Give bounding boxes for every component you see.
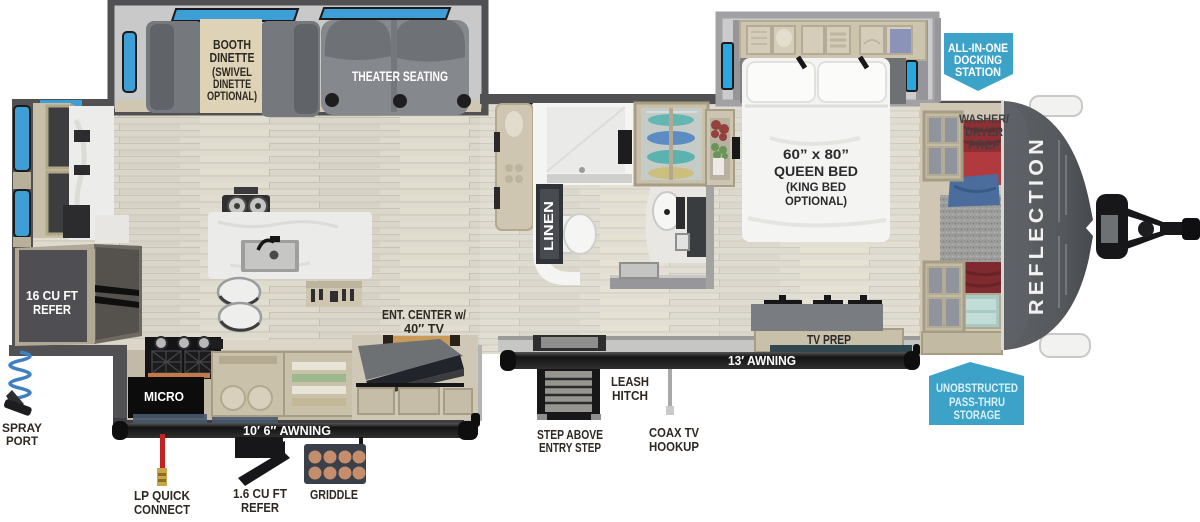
svg-text:LP QUICK: LP QUICK: [134, 488, 191, 503]
svg-text:STORAGE: STORAGE: [954, 408, 1001, 422]
svg-text:10′ 6″ AWNING: 10′ 6″ AWNING: [243, 423, 331, 438]
svg-text:REFER: REFER: [33, 302, 72, 317]
svg-text:PREP: PREP: [968, 138, 1000, 152]
svg-text:1.6 CU FT: 1.6 CU FT: [233, 486, 287, 501]
svg-text:THEATER SEATING: THEATER SEATING: [352, 68, 448, 84]
svg-text:STATION: STATION: [955, 65, 1001, 79]
svg-text:OPTIONAL): OPTIONAL): [785, 194, 847, 208]
svg-text:PORT: PORT: [6, 434, 39, 448]
svg-text:LINEN: LINEN: [541, 201, 556, 251]
svg-text:13′ AWNING: 13′ AWNING: [728, 353, 796, 368]
svg-text:DRYER: DRYER: [965, 125, 1003, 139]
svg-text:40″ TV: 40″ TV: [404, 321, 444, 336]
svg-text:WASHER/: WASHER/: [959, 112, 1010, 126]
svg-text:TV PREP: TV PREP: [807, 332, 851, 347]
svg-text:SPRAY: SPRAY: [2, 421, 42, 435]
svg-text:OPTIONAL): OPTIONAL): [207, 89, 257, 103]
svg-text:UNOBSTRUCTED: UNOBSTRUCTED: [936, 381, 1018, 395]
svg-text:REFLECTION: REFLECTION: [1026, 135, 1048, 315]
svg-text:ENT. CENTER w/: ENT. CENTER w/: [382, 307, 466, 322]
svg-text:GRIDDLE: GRIDDLE: [310, 487, 358, 502]
svg-text:ENTRY STEP: ENTRY STEP: [539, 440, 601, 455]
svg-text:(KING BED: (KING BED: [786, 180, 846, 194]
svg-text:HITCH: HITCH: [612, 388, 648, 403]
svg-text:COAX TV: COAX TV: [649, 425, 699, 440]
svg-text:16 CU FT: 16 CU FT: [26, 288, 78, 303]
svg-text:PASS-THRU: PASS-THRU: [949, 395, 1005, 409]
svg-text:CONNECT: CONNECT: [134, 502, 190, 517]
svg-text:HOOKUP: HOOKUP: [649, 439, 699, 454]
svg-text:REFER: REFER: [241, 500, 280, 515]
svg-text:DINETTE: DINETTE: [210, 50, 255, 65]
svg-text:MICRO: MICRO: [144, 389, 184, 404]
svg-text:LEASH: LEASH: [611, 374, 649, 389]
svg-text:60” x 80”: 60” x 80”: [783, 146, 849, 162]
svg-text:QUEEN BED: QUEEN BED: [774, 163, 858, 179]
